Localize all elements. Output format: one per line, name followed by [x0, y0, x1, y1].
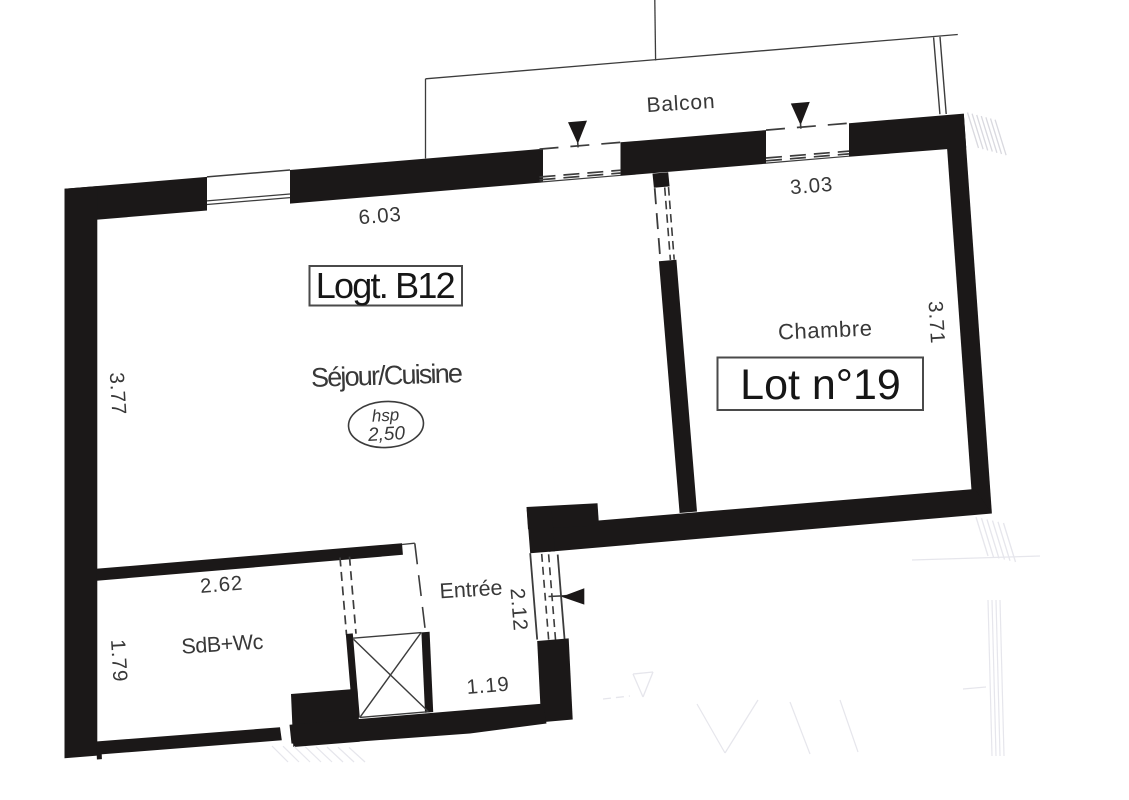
svg-text:1.19: 1.19 [466, 673, 511, 699]
svg-text:2,50: 2,50 [367, 423, 406, 446]
svg-text:6.03: 6.03 [358, 203, 403, 229]
svg-text:3.71: 3.71 [924, 300, 950, 344]
svg-text:1.79: 1.79 [106, 639, 132, 683]
svg-text:3.03: 3.03 [789, 173, 834, 199]
svg-text:Lot n°19: Lot n°19 [740, 361, 901, 409]
svg-text:Séjour/Cuisine: Séjour/Cuisine [311, 358, 464, 393]
svg-text:3.77: 3.77 [105, 372, 131, 416]
svg-text:Logt. B12: Logt. B12 [316, 265, 456, 306]
svg-text:2.12: 2.12 [506, 587, 532, 632]
svg-text:Balcon: Balcon [646, 90, 715, 117]
svg-text:Chambre: Chambre [777, 315, 872, 344]
svg-text:Entrée: Entrée [439, 576, 503, 604]
svg-text:2.62: 2.62 [199, 572, 244, 598]
svg-text:SdB+Wc: SdB+Wc [181, 630, 265, 659]
